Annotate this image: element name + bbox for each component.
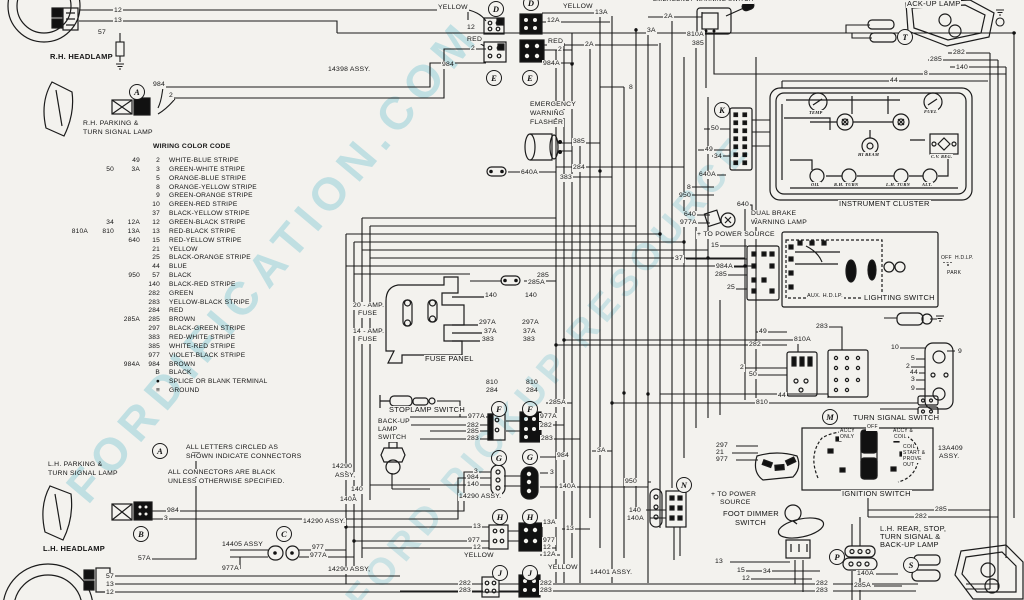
diagram-label: 385: [572, 138, 586, 146]
diagram-label: 810: [755, 399, 769, 407]
diagram-label: PARK: [946, 271, 962, 277]
diagram-label: 285: [714, 271, 728, 279]
color-code-num: ●: [130, 379, 160, 386]
diagram-label: 50: [710, 125, 720, 133]
diagram-label: 37A: [483, 328, 498, 336]
diagram-label: IGNITION SWITCH: [841, 490, 912, 498]
connector-circle-b: B: [133, 526, 149, 542]
diagram-label: 2: [470, 45, 476, 53]
color-code-num: B: [130, 370, 160, 377]
diagram-sheet: FORDIFICATION.COM FORD PICKUP RESOURCE: [0, 0, 1024, 600]
diagram-label: 977A: [309, 552, 328, 560]
connector-circle-k: K: [714, 102, 730, 118]
diagram-label: 140A: [339, 496, 358, 504]
diagram-label: 13: [714, 558, 724, 566]
diagram-label: YELLOW: [437, 4, 469, 12]
diagram-label: 37: [674, 255, 684, 263]
color-code-name: WHITE-BLUE STRIPE: [169, 158, 239, 165]
diagram-label: ONLY: [839, 435, 855, 441]
color-code-num: 10: [130, 202, 160, 209]
diagram-label: 285A: [548, 399, 567, 407]
resistor-57: [116, 42, 124, 56]
color-code-name: RED-WHITE STRIPE: [169, 335, 235, 342]
diagram-label: OFF: [940, 256, 953, 262]
connector-circle-d: D: [488, 1, 504, 17]
diagram-label: 13: [565, 525, 575, 533]
diagram-label: 14290 ASSY.: [458, 493, 502, 501]
diagram-label: 977: [715, 456, 729, 464]
diagram-label: STOPLAMP SWITCH: [388, 406, 466, 414]
foot-dimmer-switch: [777, 505, 826, 558]
p-connector: [843, 546, 877, 570]
diagram-label: 37A: [522, 328, 537, 336]
diagram-label: R.H. HEADLAMP: [49, 53, 114, 61]
diagram-label: SWITCH: [734, 519, 767, 527]
color-code-name: RED: [169, 308, 184, 315]
diagram-label: 140: [955, 64, 969, 72]
diagram-label: + TO POWER SOURCE: [696, 231, 776, 239]
color-code-name: BLACK-ORANGE STRIPE: [169, 255, 251, 262]
diagram-label: L.H. PARKING &: [47, 461, 103, 469]
diagram-label: 12: [741, 575, 751, 583]
diagram-label: WARNING: [529, 110, 565, 118]
diagram-label: 140A: [626, 515, 645, 523]
diagram-label: 49: [758, 328, 768, 336]
diagram-label: 12A: [546, 17, 561, 25]
diagram-label: RED: [466, 36, 483, 44]
connector-circle-j: J: [492, 565, 508, 581]
diagram-label: 34: [713, 153, 723, 161]
diagram-label: 977: [311, 544, 325, 552]
diagram-label: 2A: [663, 13, 674, 21]
diagram-label: 140: [466, 481, 480, 489]
diagram-label: 810A: [686, 31, 705, 39]
diagram-label: LIGHTING SWITCH: [863, 294, 936, 302]
diagram-label: HI BEAM: [857, 152, 880, 157]
color-code-num: 383: [130, 335, 160, 342]
color-code-name: ORANGE-BLUE STRIPE: [169, 176, 246, 183]
diagram-label: ASSY.: [938, 453, 960, 461]
color-code-name: GREEN-BLACK STRIPE: [169, 220, 246, 227]
color-code-num: 2: [130, 158, 160, 165]
diagram-label: 140: [350, 486, 364, 494]
diagram-label: 950: [678, 192, 692, 200]
diagram-label: 284: [572, 164, 586, 172]
diagram-label: TURN SIGNAL SWITCH: [852, 414, 940, 422]
color-code-num: 44: [130, 264, 160, 271]
diagram-label: AUX. H.D.LP.: [806, 293, 844, 299]
color-code-num: 8: [130, 185, 160, 192]
connector-circle-m: M: [822, 409, 838, 425]
diagram-label: ASSY,: [334, 472, 356, 480]
diagram-label: FUSE: [357, 336, 378, 344]
turn-signal-column-connector: [755, 453, 798, 480]
color-code-name: ORANGE-YELLOW STRIPE: [169, 185, 257, 192]
color-code-num: 3: [130, 167, 160, 174]
color-code-num: ≡: [130, 388, 160, 395]
diagram-label: 977A: [679, 219, 698, 227]
connector-circle-t: T: [897, 29, 913, 45]
diagram-label: 12: [472, 544, 482, 552]
lighting-switch-sockets: [787, 313, 953, 409]
color-code-num: 37: [130, 211, 160, 218]
color-code-name: GROUND: [169, 388, 200, 395]
diagram-label: YELLOW: [562, 3, 594, 11]
diagram-label: 977A: [467, 413, 486, 421]
diagram-label: 2A: [584, 41, 595, 49]
diagram-label: 44: [777, 392, 787, 400]
diagram-label: 282: [539, 422, 553, 430]
color-code-num: 25: [130, 255, 160, 262]
color-code-title: WIRING COLOR CODE: [152, 143, 232, 151]
diagram-label: BACK-UP: [377, 418, 411, 426]
diagram-label: 25: [726, 284, 736, 292]
diagram-label: 13: [105, 581, 115, 589]
diagram-label: BACK-UP LAMP: [879, 541, 940, 549]
c-connector: [268, 546, 299, 560]
color-code-name: BLACK: [169, 370, 192, 377]
color-code-num: 13: [130, 229, 160, 236]
diagram-label: 140A: [558, 483, 577, 491]
diagram-label: 140: [484, 292, 498, 300]
diagram-label: 383: [559, 174, 573, 182]
diagram-label: 34: [762, 568, 772, 576]
color-code-num: 285: [130, 317, 160, 324]
color-code-name: GREEN-ORANGE STRIPE: [169, 193, 253, 200]
diagram-label: 984A: [542, 60, 561, 68]
color-code-name: BROWN: [169, 317, 195, 324]
diagram-label: 44: [889, 77, 899, 85]
diagram-label: 8: [923, 70, 929, 78]
diagram-label: TURN SIGNAL LAMP: [82, 129, 154, 137]
color-code-name: BLACK-RED STRIPE: [169, 282, 236, 289]
diagram-label: 283: [815, 587, 829, 595]
color-code-num: 977: [130, 353, 160, 360]
diagram-label: 13: [113, 17, 123, 25]
diagram-label: ALL LETTERS CIRCLED AS: [185, 444, 279, 452]
diagram-label: 283: [458, 587, 472, 595]
diagram-label: 282: [748, 341, 762, 349]
color-code-num: 284: [130, 308, 160, 315]
connector-circle-h: H: [522, 509, 538, 525]
diagram-label: TEMP: [808, 110, 824, 115]
color-code-num: 283: [130, 300, 160, 307]
diagram-label: FUSE: [357, 310, 378, 318]
diagram-label: 383: [522, 336, 536, 344]
diagram-label: LAMP: [377, 426, 399, 434]
diagram-label: 14290: [331, 463, 353, 471]
diagram-label: 13A: [542, 519, 557, 527]
diagram-label: 283: [815, 323, 829, 331]
connector-circle-p: P: [829, 549, 845, 565]
diagram-label: WARNING LAMP: [750, 219, 808, 227]
lh-headlamp: [3, 564, 110, 600]
diagram-label: COIL: [893, 435, 908, 441]
diagram-label: 12: [113, 7, 123, 15]
color-code-name: BLUE: [169, 264, 187, 271]
connector-circle-j: J: [522, 565, 538, 581]
diagram-label: 8: [628, 84, 634, 92]
diagram-label: UNLESS OTHERWISE SPECIFIED.: [167, 478, 286, 486]
diagram-label: 57: [105, 573, 115, 581]
connector-circle-n: N: [676, 477, 692, 493]
color-code-name: BROWN: [169, 362, 195, 369]
diagram-label: H.D.LP.: [954, 256, 975, 262]
diagram-label: + TO POWER: [710, 491, 757, 499]
dual-brake-warning-lamp: [704, 210, 735, 227]
diagram-label: 12: [466, 24, 476, 32]
diagram-label: EMERGENCY: [529, 101, 577, 109]
diagram-label: 284: [525, 387, 539, 395]
diagram-label: EMERGENCY WARNING SWITCH: [652, 0, 754, 4]
diagram-label: 640: [736, 201, 750, 209]
ground-ring: [996, 18, 1004, 26]
diagram-label: FUEL: [923, 109, 938, 114]
diagram-label: 12A: [542, 551, 557, 559]
diagram-label: ALL CONNECTORS ARE BLACK: [167, 469, 277, 477]
diagram-label: 810: [525, 379, 539, 387]
color-code-name: GREEN-RED STRIPE: [169, 202, 237, 209]
diagram-label: 283: [540, 435, 554, 443]
diagram-label: ALT.: [921, 182, 933, 187]
emergency-warning-switch: [697, 0, 755, 34]
diagram-label: 5: [910, 355, 916, 363]
diagram-label: 14401 ASSY.: [589, 569, 633, 577]
diagram-label: 57A: [137, 555, 152, 563]
color-code-num: 21: [130, 247, 160, 254]
k-connector: [730, 108, 752, 170]
diagram-label: 640A: [520, 169, 539, 177]
diagram-label: 140: [524, 292, 538, 300]
diagram-label: 640: [683, 211, 697, 219]
diagram-label: FLASHER: [529, 119, 564, 127]
color-code-name: BLACK-YELLOW STRIPE: [169, 211, 250, 218]
diagram-label: 984: [556, 452, 570, 460]
diagram-label: 9: [910, 385, 916, 393]
diagram-label: 984: [441, 61, 455, 69]
diagram-label: YELLOW: [547, 564, 579, 572]
diagram-label: 282: [914, 513, 928, 521]
diagram-label: 2: [557, 46, 563, 54]
diagram-label: FUSE PANEL: [424, 355, 475, 363]
diagram-label: 282: [952, 49, 966, 57]
diagram-label: SOURCE: [719, 499, 752, 507]
diagram-label: 10: [890, 344, 900, 352]
connector-circle-h: H: [492, 509, 508, 525]
diagram-label: 285A: [853, 582, 872, 590]
diagram-label: INSTRUMENT CLUSTER: [838, 200, 931, 208]
diagram-label: L.H. HEADLAMP: [42, 545, 106, 553]
color-code-name: RED-YELLOW STRIPE: [169, 238, 242, 245]
connector-circle-s: S: [903, 557, 919, 573]
color-code-num: 15: [130, 238, 160, 245]
diagram-label: 14290 ASSY.: [302, 518, 346, 526]
color-code-name: SPLICE OR BLANK TERMINAL: [169, 379, 267, 386]
backup-lamp-switch: [381, 442, 405, 474]
color-code-num: 282: [130, 291, 160, 298]
connector-circle-f: F: [522, 401, 538, 417]
diagram-label: 2: [739, 364, 745, 372]
diagram-label: 383: [481, 336, 495, 344]
diagram-label: SWITCH: [377, 434, 407, 442]
color-code-name: YELLOW-BLACK STRIPE: [169, 300, 250, 307]
color-code-num: 9: [130, 193, 160, 200]
diagram-label: DUAL BRAKE: [750, 210, 797, 218]
diagram-label: 283: [539, 587, 553, 595]
connector-circle-a: A: [152, 443, 168, 459]
color-code-name: RED-BLACK STRIPE: [169, 229, 236, 236]
diagram-label: 977A: [539, 413, 558, 421]
diagram-label: 984A: [715, 263, 734, 271]
diagram-label: 140A: [856, 570, 875, 578]
connector-circle-e: E: [486, 70, 502, 86]
diagram-label: YELLOW: [463, 552, 495, 560]
diagram-label: 950: [624, 478, 638, 486]
diagram-label: SHOWN INDICATE CONNECTORS: [185, 453, 303, 461]
diagram-label: 640A: [698, 171, 717, 179]
connector-circle-c: C: [276, 526, 292, 542]
diagram-label: 285: [934, 506, 948, 514]
instrument-cluster: [770, 88, 972, 200]
connector-circle-a: A: [129, 84, 145, 100]
diagram-label: 13: [472, 523, 482, 531]
diagram-label: 9: [957, 348, 963, 356]
diagram-label: 13A: [594, 9, 609, 17]
diagram-label: OUT: [902, 463, 915, 469]
color-code-name: BLACK: [169, 273, 192, 280]
color-code-num: 140: [130, 282, 160, 289]
rh-headlamp: [8, 0, 80, 42]
diagram-label: 20 - AMP.: [352, 302, 385, 310]
diagram-label: 3A: [596, 447, 607, 455]
diagram-label: 385: [691, 40, 705, 48]
diagram-label: 57: [97, 29, 107, 37]
diagram-label: OFF: [866, 425, 879, 431]
diagram-label: TURN SIGNAL LAMP: [47, 470, 119, 478]
color-code-name: VIOLET-BLACK STRIPE: [169, 353, 245, 360]
diagram-label: 297A: [478, 319, 497, 327]
diagram-label: 14398 ASSY.: [327, 66, 371, 74]
diagram-label: 12: [105, 589, 115, 597]
diagram-label: 140: [628, 507, 642, 515]
diagram-label: OIL: [810, 182, 821, 187]
diagram-label: 283: [466, 435, 480, 443]
diagram-label: C.V. REG.: [930, 154, 953, 159]
connector-circle-f: F: [491, 401, 507, 417]
diagram-label: 50: [748, 371, 758, 379]
diagram-label: 810A: [793, 336, 812, 344]
color-code-num: 385: [130, 344, 160, 351]
color-code-name: BLACK-GREEN STRIPE: [169, 326, 246, 333]
color-code-name: YELLOW: [169, 247, 198, 254]
diagram-label: 284: [485, 387, 499, 395]
diagram-label: 14405 ASSY: [221, 541, 264, 549]
color-code-name: WHITE-RED STRIPE: [169, 344, 235, 351]
diagram-label: 8: [686, 184, 692, 192]
diagram-label: 297A: [521, 319, 540, 327]
diagram-label: 15: [710, 242, 720, 250]
diagram-label: 984: [152, 81, 166, 89]
color-code-num: 984: [130, 362, 160, 369]
color-code-num: 297: [130, 326, 160, 333]
color-code-num: 5: [130, 176, 160, 183]
fuse-panel: [386, 277, 484, 363]
diagram-label: 15: [736, 567, 746, 575]
diagram-label: 13A409: [937, 445, 964, 453]
connector-circle-g: G: [491, 450, 507, 466]
connector-circle-g: G: [522, 449, 538, 465]
diagram-label: RED: [547, 38, 564, 46]
diagram-label: R.H. TURN: [833, 182, 859, 187]
diagram-label: 977A: [221, 565, 240, 573]
diagram-label: 3: [549, 469, 555, 477]
color-code-num: 12: [130, 220, 160, 227]
connector-circle-e: E: [522, 70, 538, 86]
diagram-label: 285: [929, 56, 943, 64]
diagram-label: ACK-UP LAMP: [906, 0, 961, 8]
diagram-label: L.H. TURN: [885, 182, 911, 187]
diagram-label: 2: [168, 92, 174, 100]
color-code-num: 57: [130, 273, 160, 280]
diagram-label: 14290 ASSY,: [327, 566, 371, 574]
diagram-label: 14 - AMP.: [352, 328, 385, 336]
color-code-name: GREEN-WHITE STRIPE: [169, 167, 245, 174]
power-source-connector: [747, 246, 779, 300]
color-code-name: GREEN: [169, 291, 193, 298]
diagram-label: 810: [485, 379, 499, 387]
diagram-label: 3A: [646, 27, 657, 35]
diagram-label: R.H. PARKING &: [82, 120, 140, 128]
diagram-label: 3: [163, 515, 169, 523]
diagram-label: 984: [166, 507, 180, 515]
diagram-label: 285A: [527, 279, 546, 287]
diagram-label: 3: [910, 376, 916, 384]
